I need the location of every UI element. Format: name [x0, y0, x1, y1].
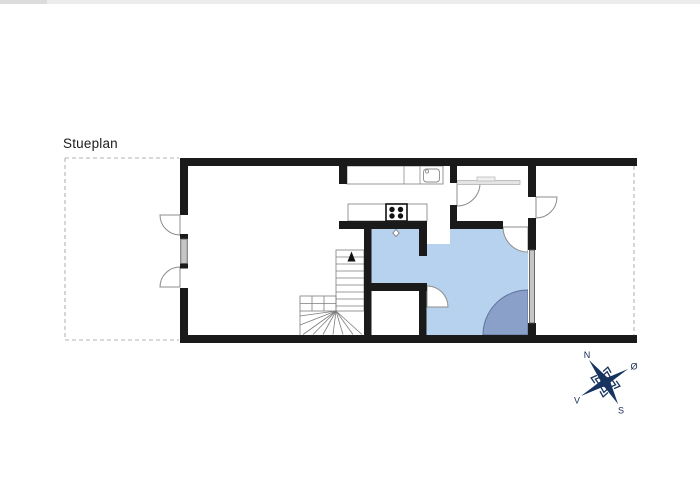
compass-label-east: Ø [630, 362, 637, 372]
wall-smallroom-right [419, 291, 427, 335]
floorplan-page: Stueplan [0, 0, 700, 500]
wall-kitchen-right-upper [450, 166, 457, 183]
annex-door [536, 197, 557, 218]
window-right-wall [530, 250, 535, 323]
floorplan-drawing: N Ø S V [0, 0, 700, 500]
wall-hall-bath [450, 221, 503, 229]
wall-stairs-bath [364, 229, 372, 335]
wall-top [180, 158, 637, 166]
window-left-wall [181, 239, 188, 264]
entry-door-lower [160, 267, 180, 287]
wall-left-upper [180, 158, 188, 215]
stairs-winder-fan [300, 311, 362, 335]
wall-kitchen-left [339, 166, 347, 184]
compass-label-south: S [618, 406, 624, 416]
wall-kitchen-bath [339, 221, 427, 229]
kitchen-hall-door [457, 183, 480, 206]
hall-bench [457, 177, 520, 185]
entry-door-upper [160, 215, 180, 235]
wall-right-upper [528, 166, 536, 197]
bathroom-floor-notch [427, 229, 450, 244]
wall-bath-stub [419, 229, 427, 256]
stairs-up-arrow-icon [348, 252, 356, 262]
wall-bottom [180, 335, 637, 343]
stove [386, 204, 407, 221]
stairs [300, 250, 364, 335]
compass-label-west: V [574, 396, 580, 406]
compass-center-dot [600, 377, 610, 387]
wall-left-lower [180, 288, 188, 335]
compass-label-north: N [584, 350, 591, 360]
compass-rose: N Ø S V [574, 350, 638, 416]
wall-smallroom-top [364, 283, 427, 291]
left-annex-outline [65, 158, 179, 340]
